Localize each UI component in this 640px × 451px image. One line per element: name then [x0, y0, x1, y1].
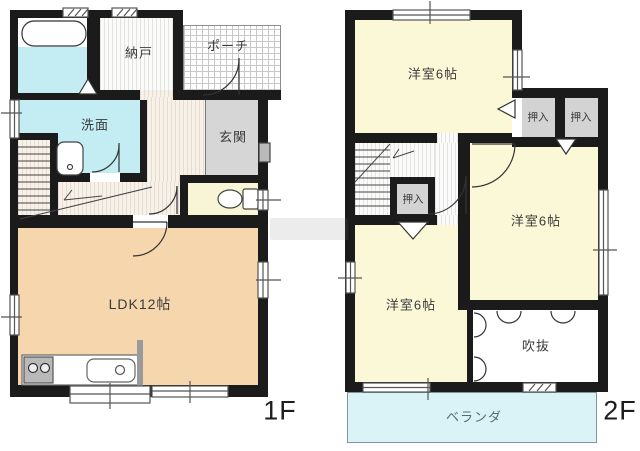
- window: [503, 50, 530, 90]
- window: [393, 1, 470, 24]
- front-door-marker: [259, 143, 270, 162]
- sink-fixture: [87, 359, 135, 382]
- label-genkan: 玄関: [219, 127, 247, 146]
- yoshitsu-bottom-door: [428, 176, 466, 214]
- watermark: [270, 218, 348, 240]
- washbasin-fixture: [57, 142, 83, 175]
- window: [256, 262, 281, 298]
- window: [152, 381, 228, 403]
- label-floor-1f: 1F: [263, 396, 297, 427]
- closet-marker-right: [556, 139, 576, 154]
- closet-marker-middle: [398, 222, 428, 239]
- bathtub-fixture: [22, 21, 86, 46]
- label-veranda: ベランダ: [446, 407, 502, 426]
- vent-hatch-bath: [63, 8, 88, 17]
- vent-hatch-nando: [112, 8, 137, 17]
- label-nando: 納戸: [125, 43, 153, 62]
- ldk-door: [133, 222, 167, 256]
- window: [338, 262, 362, 293]
- window: [70, 383, 150, 409]
- entrance-door: [203, 58, 239, 95]
- stairs-1f: [18, 147, 152, 219]
- label-yoshitsu-mid: 洋室6帖: [511, 211, 561, 230]
- toilet-door: [149, 186, 177, 214]
- window: [256, 190, 281, 210]
- window: [363, 378, 430, 400]
- label-yoshitsu-top: 洋室6帖: [408, 64, 458, 83]
- closet-marker-left: [498, 100, 515, 118]
- bath-door-marker: [79, 79, 97, 94]
- label-floor-2f: 2F: [603, 396, 637, 427]
- floor-plan: 納戸 ポーチ 洗面 玄関 LDK12帖 1F 洋室6帖 洋室6帖 洋室6帖 押入…: [0, 0, 640, 451]
- label-ldk: LDK12帖: [109, 294, 172, 314]
- label-yoshitsu-bottom: 洋室6帖: [386, 295, 436, 314]
- label-oshiire-middle: 押入: [403, 192, 424, 207]
- window: [1, 295, 22, 335]
- toilet-fixture: [218, 189, 258, 209]
- vent-hatch-fukinuke: [523, 383, 556, 392]
- label-oshiire-left: 押入: [528, 110, 549, 125]
- yoshitsu-mid-door: [472, 144, 515, 187]
- label-oshiire-right: 押入: [571, 110, 592, 125]
- window: [593, 190, 617, 295]
- label-porch: ポーチ: [207, 36, 249, 55]
- stove-fixture: [24, 357, 53, 383]
- senmen-door: [92, 143, 119, 172]
- label-fukinuke: 吹抜: [522, 336, 550, 355]
- counter-partition: [137, 340, 143, 386]
- window: [1, 100, 22, 138]
- label-senmen: 洗面: [81, 115, 109, 134]
